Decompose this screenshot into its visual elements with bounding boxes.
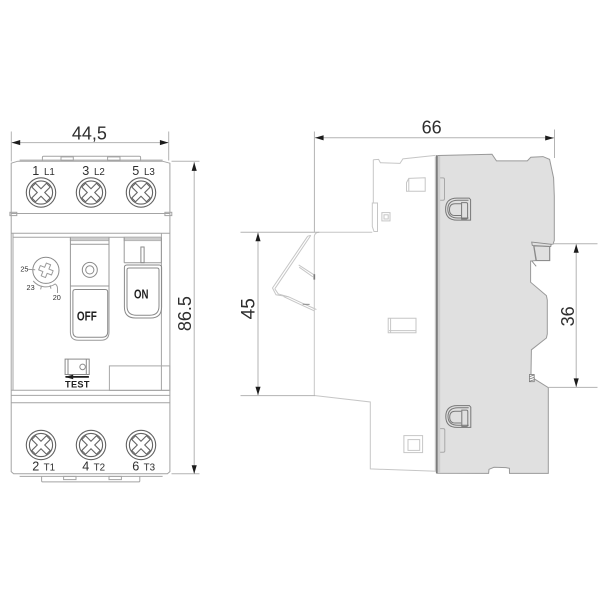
svg-text:36: 36 <box>558 306 578 326</box>
svg-text:L2: L2 <box>94 167 105 178</box>
svg-text:44,5: 44,5 <box>72 123 107 143</box>
svg-text:L1: L1 <box>44 167 55 178</box>
svg-text:TEST: TEST <box>65 379 90 389</box>
svg-text:T2: T2 <box>94 462 105 473</box>
svg-text:25: 25 <box>20 264 28 273</box>
svg-text:1: 1 <box>32 164 39 178</box>
svg-text:45: 45 <box>239 298 260 319</box>
svg-text:ON: ON <box>134 288 148 302</box>
svg-text:2: 2 <box>32 459 39 473</box>
svg-text:T1: T1 <box>44 462 55 473</box>
svg-text:20: 20 <box>53 293 61 302</box>
svg-text:L3: L3 <box>144 167 155 178</box>
svg-text:4: 4 <box>82 459 89 473</box>
svg-text:5: 5 <box>132 164 139 178</box>
svg-text:66: 66 <box>422 118 442 138</box>
svg-text:23: 23 <box>27 283 35 292</box>
svg-text:3: 3 <box>82 164 89 178</box>
svg-text:86.5: 86.5 <box>175 296 195 331</box>
svg-text:OFF: OFF <box>77 311 97 324</box>
svg-text:6: 6 <box>132 459 139 473</box>
svg-text:T3: T3 <box>144 462 156 473</box>
